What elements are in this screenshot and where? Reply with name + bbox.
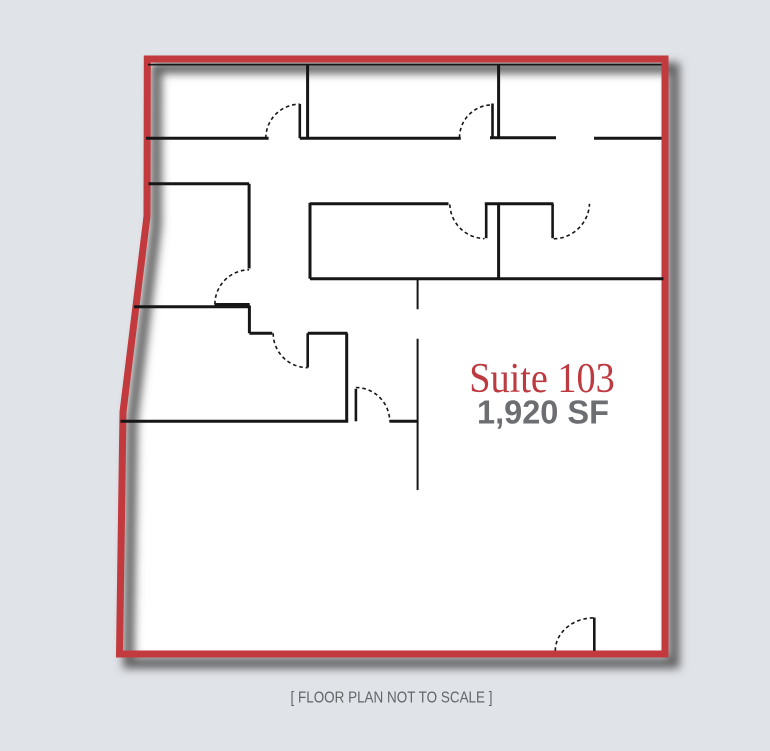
svg-text:1,920 SF: 1,920 SF (477, 394, 609, 431)
svg-text:[ FLOOR PLAN NOT TO SCALE ]: [ FLOOR PLAN NOT TO SCALE ] (291, 690, 493, 707)
